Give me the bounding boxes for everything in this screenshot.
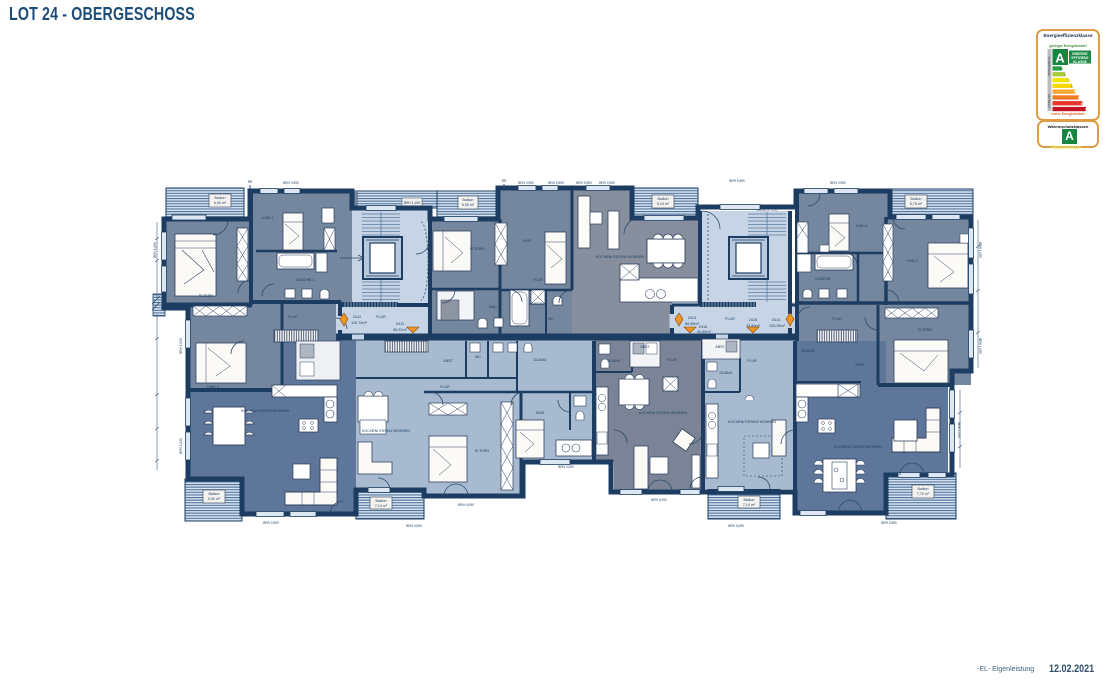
- svg-text:Balkon: Balkon: [658, 197, 669, 201]
- svg-text:80,95m²: 80,95m²: [685, 322, 700, 326]
- svg-text:RR: RR: [502, 179, 507, 183]
- svg-text:F: F: [1074, 90, 1076, 94]
- svg-text:WC: WC: [548, 317, 554, 321]
- svg-text:WC: WC: [475, 355, 481, 359]
- svg-text:ELTERN: ELTERN: [918, 328, 932, 332]
- svg-text:BRH 0,590: BRH 0,590: [283, 181, 299, 185]
- svg-text:KOCHEN/ ESSEN/ WOHNEN: KOCHEN/ ESSEN/ WOHNEN: [834, 445, 882, 449]
- svg-text:2412: 2412: [353, 315, 361, 319]
- svg-text:Balkon: Balkon: [744, 498, 755, 502]
- svg-text:G: G: [1078, 96, 1081, 100]
- svg-text:KIND 2: KIND 2: [856, 224, 868, 228]
- svg-text:WOHNGEBÄUDE: WOHNGEBÄUDE: [1048, 56, 1051, 76]
- svg-text:KIND 2: KIND 2: [207, 385, 219, 389]
- svg-text:BRH 1,090: BRH 1,090: [957, 422, 961, 438]
- svg-text:BRH 0,590: BRH 0,590: [548, 181, 564, 185]
- svg-text:I: I: [1085, 108, 1086, 112]
- svg-text:DUSCHB 1: DUSCHB 1: [296, 278, 314, 282]
- svg-text:FLUR: FLUR: [440, 385, 450, 389]
- svg-text:BRH 0,590: BRH 0,590: [830, 181, 846, 185]
- svg-text:120,95m²: 120,95m²: [769, 324, 786, 328]
- svg-text:BRH 1,490: BRH 1,490: [404, 201, 421, 205]
- svg-text:KIND: KIND: [536, 411, 545, 415]
- svg-text:BRH 1,090: BRH 1,090: [153, 242, 157, 258]
- svg-text:ABST: ABST: [640, 345, 650, 349]
- svg-text:ABST: ABST: [855, 363, 865, 367]
- svg-text:BRH 0,590: BRH 0,590: [599, 181, 615, 185]
- svg-text:D: D: [1067, 79, 1070, 83]
- svg-text:BRH 0,090: BRH 0,090: [558, 465, 574, 469]
- svg-text:95,22m²: 95,22m²: [393, 328, 408, 332]
- svg-text:KIND 1: KIND 1: [907, 259, 919, 263]
- svg-text:BRH 0,590: BRH 0,590: [518, 181, 534, 185]
- svg-text:BRH 0,590: BRH 0,590: [576, 181, 592, 185]
- svg-text:2414: 2414: [772, 318, 780, 322]
- svg-text:ABST: ABST: [715, 345, 725, 349]
- svg-text:2413: 2413: [688, 316, 696, 320]
- svg-text:2411: 2411: [396, 322, 404, 326]
- svg-text:BRH 0,090: BRH 0,090: [728, 524, 744, 528]
- svg-text:7,14 m²: 7,14 m²: [743, 503, 756, 507]
- svg-text:DUANG: DUANG: [720, 371, 733, 375]
- svg-text:KIND: KIND: [523, 239, 532, 243]
- svg-text:DUANG: DUANG: [802, 349, 815, 353]
- svg-text:Balkon: Balkon: [209, 492, 220, 496]
- svg-text:H: H: [1081, 102, 1084, 106]
- svg-text:6,005: 6,005: [686, 334, 694, 338]
- svg-text:KIND 1: KIND 1: [262, 216, 274, 220]
- svg-text:BRH 0,590: BRH 0,590: [729, 179, 745, 183]
- svg-text:FLUR: FLUR: [376, 315, 386, 319]
- svg-text:RR: RR: [248, 180, 253, 184]
- svg-text:BRH 0,090: BRH 0,090: [458, 503, 474, 507]
- svg-text:DUANG: DUANG: [534, 358, 547, 362]
- svg-text:FLUR: FLUR: [747, 359, 757, 363]
- svg-text:FLUR: FLUR: [832, 317, 842, 321]
- svg-text:Balkon: Balkon: [215, 196, 226, 200]
- svg-text:6,005: 6,005: [409, 334, 417, 338]
- svg-text:Balkon: Balkon: [463, 198, 474, 202]
- svg-text:BRH 0,090: BRH 0,090: [651, 498, 667, 502]
- svg-text:KLASSE: KLASSE: [1073, 60, 1087, 64]
- svg-text:BRH 0,590: BRH 0,590: [263, 521, 279, 525]
- svg-text:6,00 m²: 6,00 m²: [214, 201, 227, 205]
- svg-text:2415: 2415: [749, 318, 757, 322]
- svg-text:BRH 0,590: BRH 0,590: [881, 521, 897, 525]
- svg-text:BRH 1,090: BRH 1,090: [978, 242, 982, 258]
- svg-text:Balkon: Balkon: [911, 197, 922, 201]
- svg-text:KOCHEN/ ESSEN/ WOHNEN: KOCHEN/ ESSEN/ WOHNEN: [596, 255, 644, 259]
- svg-text:ELTERN: ELTERN: [199, 294, 213, 298]
- svg-text:Balkon: Balkon: [918, 487, 929, 491]
- svg-text:ELTERN: ELTERN: [470, 247, 484, 251]
- svg-text:KOCHEN/ ESSEN/ WOHNEN: KOCHEN/ ESSEN/ WOHNEN: [728, 420, 776, 424]
- svg-text:C: C: [1064, 73, 1067, 77]
- svg-text:9,00 m²: 9,00 m²: [208, 497, 221, 501]
- svg-text:5,10 m²: 5,10 m²: [657, 202, 670, 206]
- svg-text:KOCHEN/ ESSEN/ WOHNEN: KOCHEN/ ESSEN/ WOHNEN: [639, 411, 687, 415]
- svg-text:ALTBAUTEN: ALTBAUTEN: [1048, 94, 1051, 108]
- svg-text:110,74m²: 110,74m²: [351, 321, 367, 325]
- svg-text:DUANG: DUANG: [608, 359, 621, 363]
- svg-text:FLUR: FLUR: [533, 278, 543, 282]
- svg-text:2416: 2416: [699, 325, 707, 329]
- svg-text:BRH 0,090: BRH 0,090: [406, 524, 422, 528]
- svg-text:KOCHEN/ ESSEN/ WOHNEN: KOCHEN/ ESSEN/ WOHNEN: [362, 429, 410, 433]
- svg-text:FLUR: FLUR: [725, 317, 735, 321]
- svg-text:Balkon: Balkon: [376, 499, 387, 503]
- svg-text:6,05 m²: 6,05 m²: [462, 203, 475, 207]
- svg-text:E: E: [1071, 84, 1074, 88]
- svg-text:FLUR: FLUR: [667, 358, 677, 362]
- svg-text:BAD: BAD: [489, 305, 497, 309]
- svg-text:B: B: [1060, 67, 1063, 71]
- svg-text:DUSCHE: DUSCHE: [529, 302, 545, 306]
- svg-text:7,70 m²: 7,70 m²: [917, 492, 930, 496]
- svg-text:BRH 1,090: BRH 1,090: [978, 338, 982, 354]
- svg-text:BRH 1,090: BRH 1,090: [179, 338, 183, 354]
- svg-text:KOCHEN/ ESSEN/ WOHNEN: KOCHEN/ ESSEN/ WOHNEN: [241, 409, 289, 413]
- svg-text:DUSCHB: DUSCHB: [815, 277, 831, 281]
- svg-text:7,14 m²: 7,14 m²: [375, 504, 388, 508]
- svg-text:ELTERN: ELTERN: [475, 449, 489, 453]
- svg-text:A: A: [1055, 51, 1065, 66]
- svg-text:FLUR: FLUR: [288, 315, 298, 319]
- svg-text:ABST: ABST: [443, 359, 453, 363]
- svg-text:6,75 m²: 6,75 m²: [910, 202, 923, 206]
- svg-text:40,85m²: 40,85m²: [697, 330, 712, 334]
- svg-text:BRH 1,090: BRH 1,090: [179, 438, 183, 454]
